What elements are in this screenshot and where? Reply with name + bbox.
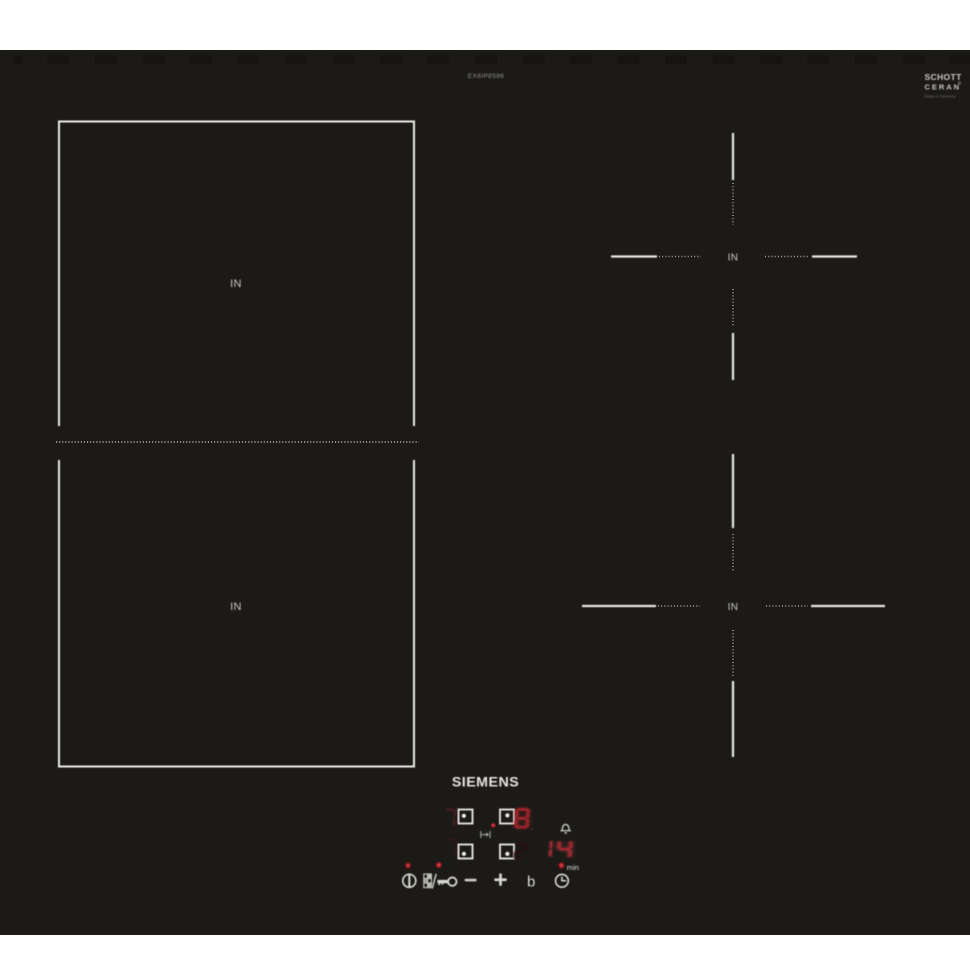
svg-text:min: min	[567, 863, 579, 872]
svg-text:IN: IN	[230, 601, 242, 613]
svg-text:IN: IN	[230, 278, 242, 290]
svg-text:SIEMENS: SIEMENS	[452, 775, 519, 791]
svg-text:EX6IP8586: EX6IP8586	[468, 73, 505, 80]
svg-text:Made in Germany: Made in Germany	[925, 95, 956, 99]
svg-text:b: b	[527, 874, 535, 891]
svg-text:IN: IN	[728, 602, 739, 613]
svg-text:IN: IN	[728, 253, 739, 264]
svg-text:SCHOTT: SCHOTT	[925, 72, 963, 82]
svg-text:CERAN: CERAN	[925, 83, 962, 92]
